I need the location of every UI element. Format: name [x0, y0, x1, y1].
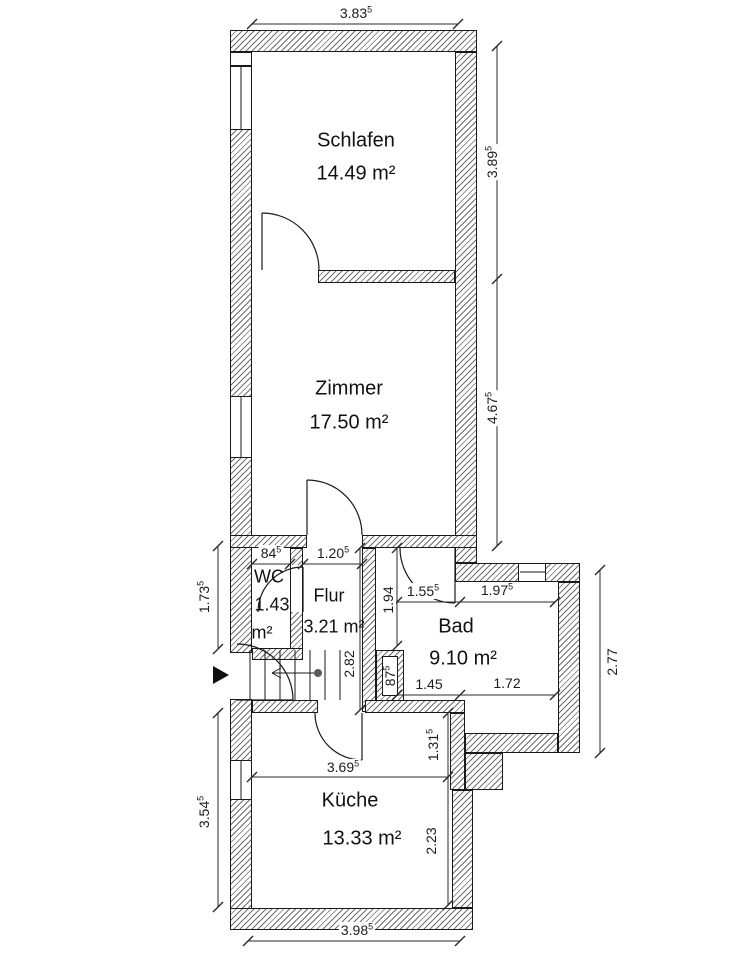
- dimension-ticks: [213, 19, 605, 946]
- room-label-kueche-name: Küche: [322, 790, 379, 813]
- dim-label-bad-top-left: 1.555: [405, 583, 441, 599]
- dim-label-top: 3.835: [338, 5, 374, 21]
- room-label-wc-area-value: 1.43: [254, 595, 289, 616]
- stairs: [250, 650, 340, 700]
- entrance-arrow-icon: [213, 666, 229, 684]
- dim-label-bad-bottom-right: 1.72: [491, 675, 522, 691]
- dim-label-shaft: 875: [382, 666, 398, 687]
- dim-label-bad-right: 2.77: [604, 646, 620, 677]
- room-label-schlafen-name: Schlafen: [317, 130, 395, 153]
- room-label-zimmer-name: Zimmer: [315, 378, 383, 401]
- dim-label-step: 1.315: [425, 727, 441, 763]
- door-zimmer: [307, 480, 362, 535]
- floor-plan: Schlafen 14.49 m² Zimmer 17.50 m² WC 1.4…: [0, 0, 730, 960]
- dim-label-schlafen-right: 3.895: [484, 144, 500, 180]
- room-label-flur-area: 3.21 m²: [303, 617, 364, 638]
- room-label-kueche-area: 13.33 m²: [323, 828, 402, 851]
- dim-label-flur-width: 1.205: [315, 545, 351, 561]
- dim-label-hall-height: 2.82: [341, 648, 357, 679]
- room-label-wc-area-unit: m²: [252, 623, 273, 644]
- room-label-zimmer-area: 17.50 m²: [310, 412, 389, 435]
- dim-label-kueche-top: 3.695: [325, 759, 361, 775]
- dim-label-wc-left: 1.735: [196, 579, 212, 615]
- dim-label-bad-bottom-left: 1.45: [413, 676, 444, 692]
- dimension-lines: [218, 24, 600, 941]
- room-label-schlafen-area: 14.49 m²: [317, 163, 396, 186]
- stair-direction-start: [314, 669, 322, 677]
- room-label-wc-name: WC: [254, 567, 284, 588]
- room-label-bad-name: Bad: [438, 616, 474, 639]
- dim-label-zimmer-right: 4.675: [484, 390, 500, 426]
- room-label-flur-name: Flur: [314, 586, 345, 607]
- dim-label-bad-entry: 1.94: [380, 584, 396, 615]
- dim-label-bad-top-right: 1.975: [479, 582, 515, 598]
- door-kueche: [315, 713, 362, 760]
- dim-label-wc-width: 845: [259, 545, 284, 561]
- door-schlafen: [262, 213, 319, 270]
- dim-label-kueche-left: 3.545: [196, 794, 212, 830]
- dim-label-bottom: 3.985: [339, 922, 375, 938]
- room-label-bad-area: 9.10 m²: [429, 648, 497, 671]
- dim-label-kueche-right: 2.23: [423, 825, 439, 856]
